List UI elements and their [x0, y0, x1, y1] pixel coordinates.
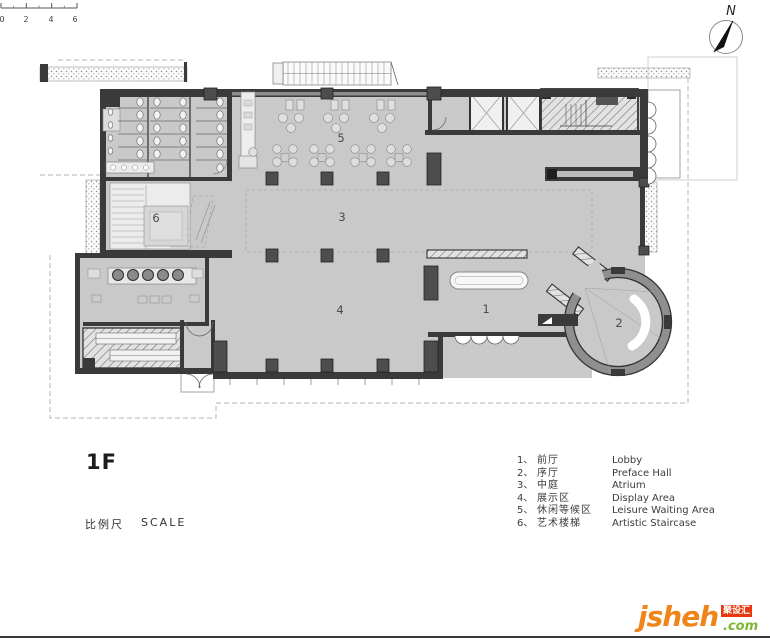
- legend-en: Leisure Waiting Area: [612, 505, 715, 518]
- room-label-artistic-stair: 6: [152, 211, 159, 225]
- legend-en: Lobby: [612, 455, 642, 468]
- legend-item-display-area: 4、 展示区 Display Area: [517, 493, 715, 506]
- scale-tick-6: 6: [72, 15, 77, 24]
- window-ticks: [230, 379, 419, 385]
- legend-en: Artistic Staircase: [612, 518, 696, 531]
- scale-ticks: 0 2 4 6: [0, 15, 78, 24]
- scale-tick-0: 0: [0, 15, 5, 24]
- room-label-display-area: 4: [336, 303, 343, 317]
- legend-cn: 中庭: [537, 480, 612, 493]
- legend-cn: 序厅: [537, 468, 612, 481]
- legend-index: 3、: [517, 480, 537, 493]
- legend-cn: 展示区: [537, 493, 612, 506]
- watermark-tld: .com: [723, 619, 758, 634]
- legend-item-artistic-staircase: 6、 艺术楼梯 Artistic Staircase: [517, 518, 715, 531]
- drawing-sheet: 1 2 3 4 5 6 N 1F 0 2 4 6 比例尺 SCALE 1、 前厅…: [0, 0, 770, 639]
- legend-cn: 前厅: [537, 455, 612, 468]
- legend-en: Atrium: [612, 480, 646, 493]
- watermark-logo: jsheh 聚设汇 .com: [636, 598, 770, 638]
- watermark-brand: jsheh: [638, 600, 718, 633]
- scale-tick-2: 2: [23, 15, 28, 24]
- lobby-top-wall: [427, 250, 527, 258]
- legend-index: 1、: [517, 455, 537, 468]
- scale-tick-4: 4: [48, 15, 53, 24]
- legend-index: 5、: [517, 505, 537, 518]
- room-label-atrium: 3: [338, 210, 345, 224]
- legend-item-preface-hall: 2、 序厅 Preface Hall: [517, 468, 715, 481]
- scale-bar: 0 2 4 6: [0, 0, 90, 28]
- scale-label-cn: 比例尺: [85, 516, 141, 532]
- floor-title: 1F: [86, 450, 117, 474]
- room-label-leisure-area: 5: [337, 131, 344, 145]
- legend-cn: 休闲等候区: [537, 505, 612, 518]
- legend-item-leisure-waiting: 5、 休闲等候区 Leisure Waiting Area: [517, 505, 715, 518]
- room-label-lobby: 1: [482, 302, 489, 316]
- escalator-zone: [83, 328, 183, 368]
- scale-bar-labels: 比例尺 SCALE: [85, 516, 195, 532]
- legend-item-atrium: 3、 中庭 Atrium: [517, 480, 715, 493]
- north-label: N: [726, 4, 736, 19]
- legend-en: Preface Hall: [612, 468, 672, 481]
- north-arrow: N: [710, 4, 743, 54]
- exterior-stair: [273, 62, 398, 85]
- artistic-stair-room6: [110, 183, 190, 249]
- legend-index: 4、: [517, 493, 537, 506]
- sheet-bottom-rule: [0, 636, 770, 638]
- scale-label-en: SCALE: [141, 516, 186, 532]
- room-legend: 1、 前厅 Lobby 2、 序厅 Preface Hall 3、 中庭 Atr…: [517, 455, 715, 531]
- legend-cn: 艺术楼梯: [537, 518, 612, 531]
- legend-item-lobby: 1、 前厅 Lobby: [517, 455, 715, 468]
- legend-index: 6、: [517, 518, 537, 531]
- legend-index: 2、: [517, 468, 537, 481]
- floor-plan: 1 2 3 4 5 6 N: [0, 0, 770, 639]
- watermark-badge: 聚设汇: [721, 605, 752, 617]
- legend-en: Display Area: [612, 493, 675, 506]
- room-label-preface-hall: 2: [615, 316, 622, 330]
